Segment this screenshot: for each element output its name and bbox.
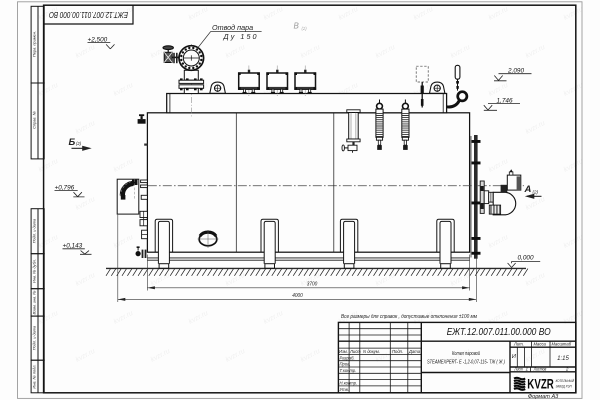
svg-text:kvzr.ru: kvzr.ru [300,348,322,364]
svg-text:Инв. № подл.: Инв. № подл. [32,364,37,388]
svg-text:ЗАВОД РЭП: ЗАВОД РЭП [556,384,572,388]
svg-text:Подп. и дата: Подп. и дата [32,218,37,243]
svg-text:kvzr.ru: kvzr.ru [525,272,547,288]
svg-text:3700: 3700 [307,282,318,288]
svg-text:kvzr.ru: kvzr.ru [338,6,360,22]
svg-text:ЕЖТ.12.007.011.00.000 ВО: ЕЖТ.12.007.011.00.000 ВО [49,10,128,19]
svg-text:kvzr.ru: kvzr.ru [225,44,247,60]
svg-text:Перв. примен.: Перв. примен. [32,31,37,57]
svg-text:kvzr.ru: kvzr.ru [75,196,97,212]
svg-text:kvzr.ru: kvzr.ru [488,310,510,326]
svg-text:КОТЕЛЬНЫЙ: КОТЕЛЬНЫЙ [556,379,575,383]
svg-text:kvzr.ru: kvzr.ru [488,82,510,98]
svg-text:kvzr.ru: kvzr.ru [525,196,547,212]
svg-text:Отвод пара: Отвод пара [212,23,253,32]
svg-text:Масса: Масса [534,342,547,347]
svg-text:kvzr.ru: kvzr.ru [563,6,585,22]
svg-text:Утв.: Утв. [340,387,350,392]
svg-text:kvzr.ru: kvzr.ru [113,82,135,98]
svg-text:1: 1 [526,367,528,372]
svg-text:(2): (2) [76,141,82,146]
svg-text:KVZR: KVZR [527,375,554,391]
svg-text:0,000: 0,000 [518,254,534,261]
svg-text:kvzr.ru: kvzr.ru [38,234,60,250]
svg-text:kvzr.ru: kvzr.ru [188,6,210,22]
svg-text:kvzr.ru: kvzr.ru [263,6,285,22]
svg-text:kvzr.ru: kvzr.ru [188,310,210,326]
svg-text:kvzr.ru: kvzr.ru [488,158,510,174]
svg-text:4000: 4000 [292,293,303,299]
svg-text:kvzr.ru: kvzr.ru [225,348,247,364]
svg-text:Ду 150: Ду 150 [223,32,257,41]
svg-text:Подп.: Подп. [392,349,403,354]
svg-text:Разраб.: Разраб. [340,355,355,360]
svg-text:kvzr.ru: kvzr.ru [488,6,510,22]
svg-text:Инв. № дубл.: Инв. № дубл. [32,259,37,283]
svg-text:kvzr.ru: kvzr.ru [38,82,60,98]
svg-text:Формат А3: Формат А3 [528,394,559,400]
svg-text:kvzr.ru: kvzr.ru [113,234,135,250]
svg-text:Пров.: Пров. [340,362,351,367]
svg-text:kvzr.ru: kvzr.ru [450,44,472,60]
svg-text:kvzr.ru: kvzr.ru [150,348,172,364]
svg-text:kvzr.ru: kvzr.ru [525,348,547,364]
svg-text:А: А [524,184,532,195]
svg-text:kvzr.ru: kvzr.ru [488,234,510,250]
svg-text:kvzr.ru: kvzr.ru [113,158,135,174]
svg-text:kvzr.ru: kvzr.ru [75,120,97,136]
svg-text:kvzr.ru: kvzr.ru [38,158,60,174]
svg-text:(2): (2) [533,190,539,195]
svg-text:kvzr.ru: kvzr.ru [75,44,97,60]
svg-text:kvzr.ru: kvzr.ru [413,6,435,22]
svg-text:Котел паровой: Котел паровой [452,350,480,357]
svg-text:kvzr.ru: kvzr.ru [563,234,585,250]
svg-text:Масштаб: Масштаб [552,342,572,347]
svg-text:kvzr.ru: kvzr.ru [38,310,60,326]
svg-text:STEAMEXPERT- Е -1,2-0,07-115-: STEAMEXPERT- Е -1,2-0,07-115- ТЖ ( Ж ) [427,360,505,366]
svg-text:Н.контр.: Н.контр. [340,381,358,386]
svg-text:kvzr.ru: kvzr.ru [525,120,547,136]
svg-text:И: И [512,354,517,360]
svg-text:ЕЖТ.12.007.011.00.000 ВО: ЕЖТ.12.007.011.00.000 ВО [447,326,551,338]
svg-text:kvzr.ru: kvzr.ru [375,44,397,60]
svg-text:Лист: Лист [349,349,361,354]
svg-text:kvzr.ru: kvzr.ru [113,310,135,326]
svg-text:kvzr.ru: kvzr.ru [263,310,285,326]
svg-text:Взам. инв. №: Взам. инв. № [32,290,37,315]
svg-text:Справ. №: Справ. № [32,110,37,128]
svg-text:Листов: Листов [533,367,547,372]
svg-text:kvzr.ru: kvzr.ru [563,82,585,98]
svg-text:kvzr.ru: kvzr.ru [75,272,97,288]
svg-text:kvzr.ru: kvzr.ru [75,348,97,364]
svg-text:Все размеры для справок , допу: Все размеры для справок , допустимые отк… [341,314,477,320]
svg-text:N докум.: N докум. [363,349,380,354]
svg-text:(2): (2) [302,26,308,31]
svg-text:Подп. и дата: Подп. и дата [32,325,37,350]
svg-text:Б: Б [69,137,76,148]
svg-text:Т.контр.: Т.контр. [340,368,357,373]
svg-text:Дата: Дата [408,349,421,354]
svg-text:kvzr.ru: kvzr.ru [525,44,547,60]
svg-text:Изм.: Изм. [339,349,348,354]
svg-text:kvzr.ru: kvzr.ru [563,310,585,326]
svg-text:В: В [294,22,300,31]
svg-text:Лист: Лист [514,367,524,372]
svg-text:Лит.: Лит. [513,342,524,347]
svg-text:kvzr.ru: kvzr.ru [300,44,322,60]
svg-text:kvzr.ru: kvzr.ru [563,158,585,174]
svg-text:1:15: 1:15 [557,356,569,362]
